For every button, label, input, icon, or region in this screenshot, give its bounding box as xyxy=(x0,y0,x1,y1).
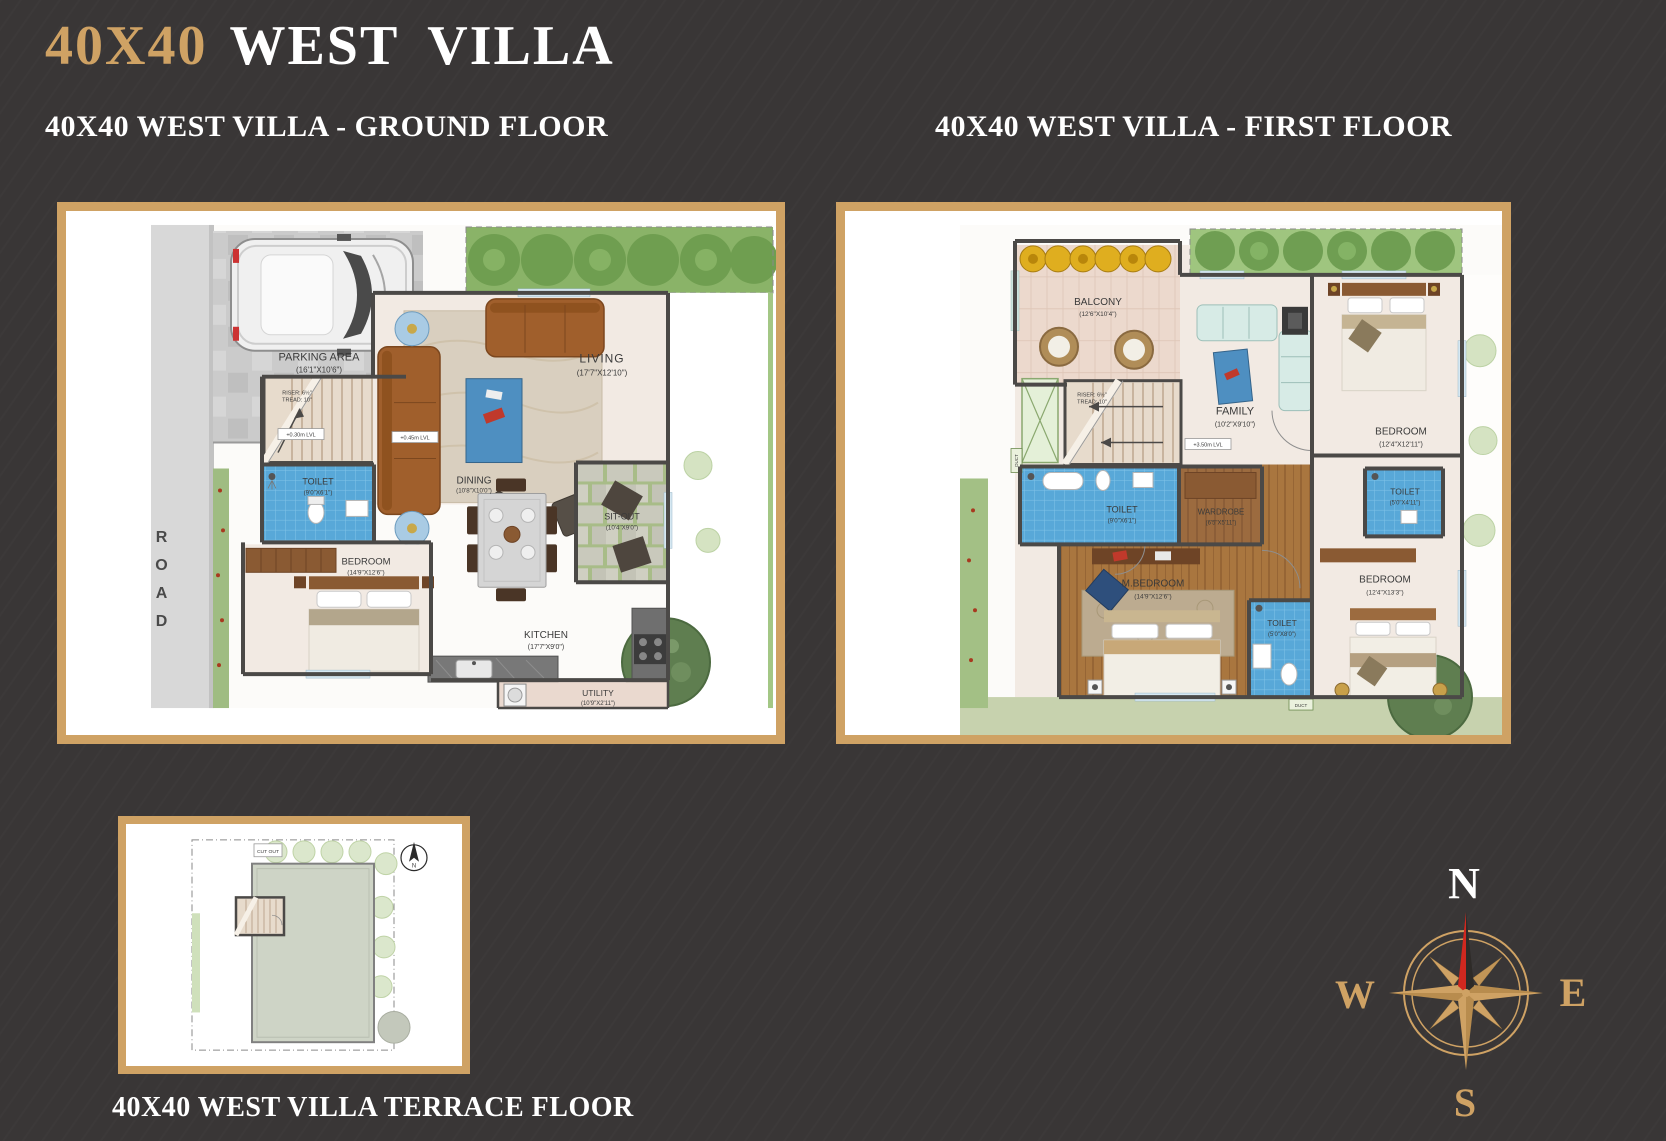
planting-strip xyxy=(213,469,229,709)
room-dims-bedroom-top: (12'4"X12'11") xyxy=(1379,442,1423,449)
room-label-sitout: SIT-OUT xyxy=(604,511,640,521)
compass-south-label: S xyxy=(1454,1080,1476,1125)
page-title: 40X40WEST VILLA xyxy=(45,14,615,78)
room-dims-family: (10'2"X9'10") xyxy=(1215,422,1255,429)
room-dims-bedroom: (14'9"X12'6") xyxy=(347,569,384,576)
toilet-left-room xyxy=(1020,467,1179,545)
room-dims-kitchen: (17'7"X9'0") xyxy=(528,644,564,651)
room-dims-living: (17'7"X12'10") xyxy=(577,369,628,378)
room-dims-utility: (10'9"X2'11") xyxy=(581,701,615,707)
hedge-trees xyxy=(1190,229,1462,275)
svg-text:+3.50m LVL: +3.50m LVL xyxy=(1193,443,1222,449)
compass-rose-icon: N W E S xyxy=(1325,852,1605,1132)
room-label-kitchen: KITCHEN xyxy=(524,630,568,641)
side-garden xyxy=(1462,275,1502,708)
toilet-mid-room xyxy=(1249,600,1314,697)
level-tag-350: +3.50m LVL xyxy=(1185,439,1231,450)
stairs-riser-note: RISER: 6½" xyxy=(282,390,311,397)
staircase: RISER: 6½" TREAD: 10" xyxy=(264,377,380,463)
room-dims-bedroom-bottom: (12'4"X13'3") xyxy=(1366,589,1403,596)
ground-floor-plan-panel: PARKING AREA (16'1"X10'6") RISER: 6½" TR… xyxy=(57,202,785,744)
north-needle-dark xyxy=(1466,912,1474,993)
compass-star xyxy=(1389,912,1543,1070)
ground-floor-plan: PARKING AREA (16'1"X10'6") RISER: 6½" TR… xyxy=(66,211,776,735)
svg-text:+0.45m LVL: +0.45m LVL xyxy=(400,436,429,442)
room-label-bedroom-bottom: BEDROOM xyxy=(1359,574,1411,585)
compass-west-label: W xyxy=(1335,972,1375,1017)
first-floor-plan-panel: BALCONY (12'6"X10'4") FAMILY (10'2"X9'10… xyxy=(836,202,1511,744)
room-dims-balcony: (12'6"X10'4") xyxy=(1079,311,1116,318)
room-label-balcony: BALCONY xyxy=(1074,297,1122,308)
first-floor-plan: BALCONY (12'6"X10'4") FAMILY (10'2"X9'10… xyxy=(845,211,1502,735)
stairs-riser-note: RISER: 6½" xyxy=(1077,392,1106,399)
first-floor-header: 40X40 WEST VILLA - FIRST FLOOR xyxy=(935,110,1452,144)
room-label-family: FAMILY xyxy=(1216,406,1255,418)
room-label-toilet: TOILET xyxy=(302,476,334,486)
terrace-floor-plan: CUT OUT N xyxy=(126,824,462,1066)
room-label-utility: UTILITY xyxy=(582,688,614,698)
ground-floor-header: 40X40 WEST VILLA - GROUND FLOOR xyxy=(45,110,608,144)
living-center-table xyxy=(466,379,522,463)
dining-set xyxy=(467,478,557,601)
room-label-dining: DINING xyxy=(457,475,492,486)
room-dims-toilet: (9'0"X6'1") xyxy=(304,489,333,496)
svg-text:DUCT: DUCT xyxy=(1014,454,1019,467)
open-shaft xyxy=(1022,379,1058,463)
terrace-plant-strip xyxy=(192,913,200,1012)
room-dims-parking: (16'1"X10'6") xyxy=(296,366,342,375)
bedroom-wardrobe xyxy=(246,548,336,572)
planting-strip xyxy=(960,478,988,708)
terrace-staircase xyxy=(236,897,284,935)
wardrobe-room xyxy=(1179,467,1262,545)
cutout-tag: CUT OUT xyxy=(254,844,282,857)
page-title-size: 40X40 xyxy=(45,15,207,77)
room-dims-dining: (10'8"X10'0") xyxy=(456,487,492,494)
room-label-toilet-left: TOILET xyxy=(1106,504,1138,514)
hedge-trees xyxy=(466,227,776,293)
room-dims-toilet-right: (5'0"X4'11") xyxy=(1390,500,1421,506)
svg-text:N: N xyxy=(412,864,416,870)
room-label-mbedroom: M.BEDROOM xyxy=(1122,578,1185,589)
terrace-slab xyxy=(252,864,374,1043)
sitout-area xyxy=(576,463,668,583)
terrace-floor-caption: 40X40 WEST VILLA TERRACE FLOOR xyxy=(112,1092,634,1124)
room-dims-wardrobe: (6'5"X5'11") xyxy=(1206,520,1237,526)
room-label-toilet-mid: TOILET xyxy=(1267,618,1297,628)
north-needle-red xyxy=(1458,912,1466,993)
stairs-tread-note: TREAD: 10" xyxy=(1077,400,1107,406)
room-label-parking: PARKING AREA xyxy=(279,352,361,364)
svg-text:DUCT: DUCT xyxy=(1295,703,1308,708)
room-dims-toilet-left: (9'0"X6'1") xyxy=(1108,517,1137,524)
svg-text:+0.30m LVL: +0.30m LVL xyxy=(286,433,315,439)
page-title-name: WEST VILLA xyxy=(229,15,614,77)
terrace-floor-plan-panel: CUT OUT N xyxy=(118,816,470,1074)
duct-tag-bottom: DUCT xyxy=(1289,699,1313,710)
level-tag-045: +0.45m LVL xyxy=(392,432,438,443)
road-label: ROAD xyxy=(152,529,170,641)
room-label-bedroom-top: BEDROOM xyxy=(1375,427,1427,438)
compass-north-label: N xyxy=(1448,859,1480,908)
room-label-bedroom: BEDROOM xyxy=(341,556,390,567)
room-label-wardrobe: WARDROBE xyxy=(1198,507,1245,516)
room-dims-toilet-mid: (5'0"X8'0") xyxy=(1268,632,1296,638)
room-dims-mbedroom: (14'9"X12'6") xyxy=(1134,593,1171,600)
level-tag-030: +0.30m LVL xyxy=(278,429,324,440)
compass-east-label: E xyxy=(1560,970,1587,1015)
room-label-toilet-right: TOILET xyxy=(1390,486,1420,496)
svg-text:CUT OUT: CUT OUT xyxy=(257,849,279,855)
stairs-tread-note: TREAD: 10" xyxy=(282,398,312,404)
staircase: RISER: 6½" TREAD: 10" xyxy=(1065,381,1181,465)
room-label-living: LIVING xyxy=(579,352,624,366)
room-dims-sitout: (10'4"X9'0") xyxy=(606,524,638,531)
